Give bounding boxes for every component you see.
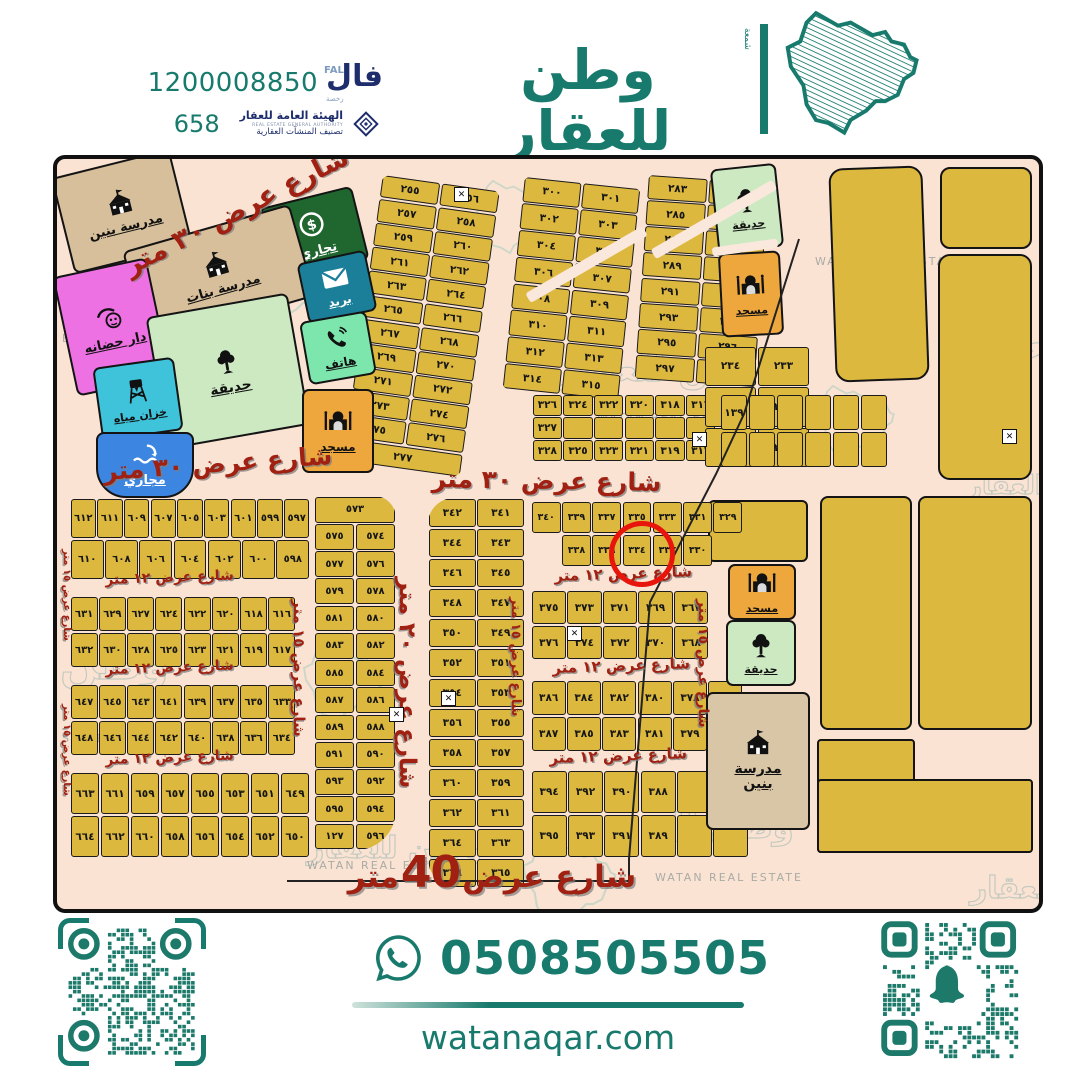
plot-٦٣١: ٦٣١: [71, 597, 98, 632]
plot-٦٣٥: ٦٣٥: [240, 685, 267, 720]
plot-unlabeled: [833, 395, 860, 431]
facility-label: بريد: [327, 292, 353, 309]
street-label: شارع عرض ١٢ متر: [105, 748, 234, 768]
plot-٦٤٥: ٦٤٥: [99, 685, 126, 720]
street-label: شارع عرض ١٢ متر: [549, 744, 687, 767]
plot-٥٧٣: ٥٧٣: [315, 497, 396, 523]
plot-block-b316: ٣٢٦٣٢٤٣٢٢٣٢٠٣١٨٣١٦٣٢٧٣٢٨٣٢٥٣٢٣٣٢١٣١٩٣١٧: [532, 394, 716, 462]
unified-phone-number[interactable]: 1200008850: [148, 68, 318, 98]
plot-٦٤٩: ٦٤٩: [281, 773, 310, 815]
facility-telephone: هاتف: [299, 311, 377, 386]
plot-slab: [938, 254, 1032, 480]
bottom-street-prefix: شارع عرض: [462, 859, 636, 895]
street-label: شارع عرض ١٥ متر: [61, 704, 72, 824]
plot-٣٤٢: ٣٤٢: [429, 499, 476, 528]
plot-٦٤٦: ٦٤٦: [99, 721, 126, 756]
plot-٣٥٩: ٣٥٩: [477, 769, 524, 798]
plot-٦٥٣: ٦٥٣: [221, 773, 250, 815]
plot-slab: [817, 779, 1033, 853]
plot-٦٠٣: ٦٠٣: [204, 499, 229, 539]
survey-marker-icon: ✕: [441, 691, 456, 706]
plot-٢٩٥: ٢٩٥: [636, 329, 697, 357]
plot-٦٦٣: ٦٦٣: [71, 773, 100, 815]
brand-divider-bar: [760, 24, 768, 134]
plot-٣٤١: ٣٤١: [477, 499, 524, 528]
plot-٥٩٧: ٥٩٧: [284, 499, 309, 539]
authority-name: الهيئة العامة للعقار: [240, 110, 343, 123]
street-label: شارع عرض ١٢ متر: [552, 654, 690, 677]
plot-٣١٤: ٣١٤: [502, 363, 562, 394]
plot-٣١٨: ٣١٨: [655, 395, 684, 416]
plot-٦٦٠: ٦٦٠: [131, 816, 160, 858]
plot-٣٢٥: ٣٢٥: [563, 440, 592, 461]
plot-٥٩١: ٥٩١: [315, 742, 355, 768]
plot-٥٨٩: ٥٨٩: [315, 715, 355, 741]
plot-٥٨١: ٥٨١: [315, 606, 355, 632]
mosque-icon: [734, 271, 768, 303]
plot-٦٠٩: ٦٠٩: [124, 499, 149, 539]
plot-٦٣٦: ٦٣٦: [240, 721, 267, 756]
plot-٣٧١: ٣٧١: [603, 591, 637, 625]
survey-marker-icon: ✕: [454, 187, 469, 202]
plot-٣٦٩: ٣٦٩: [638, 591, 672, 625]
plot-٣٤٥: ٣٤٥: [477, 559, 524, 588]
plot-٣٢٦: ٣٢٦: [533, 395, 562, 416]
plot-٣٤٤: ٣٤٤: [429, 529, 476, 558]
plot-٦٥٩: ٦٥٩: [131, 773, 160, 815]
plot-٣٤٣: ٣٤٣: [477, 529, 524, 558]
plot-block-b367: ٣٧٥٣٧٣٣٧١٣٦٩٣٦٧٣٧٦٣٧٤٣٧٢٣٧٠٣٦٨: [531, 590, 709, 660]
plot-٣٥٢: ٣٥٢: [429, 649, 476, 678]
plot-٦٥٧: ٦٥٧: [161, 773, 190, 815]
fal-license-logo: فال FAL رخصة: [326, 62, 383, 103]
plot-٢٨٩: ٢٨٩: [642, 252, 703, 280]
plot-٦٠٥: ٦٠٥: [177, 499, 202, 539]
plot-١٣٩: ١٣٩: [721, 395, 748, 431]
street-label: شارع عرض ١٥ متر: [290, 599, 308, 774]
fal-logo-sub: رخصة: [326, 96, 344, 103]
plot-٢٣٤: ٢٣٤: [705, 347, 757, 386]
whatsapp-icon: [370, 930, 426, 986]
plot-٦٥٦: ٦٥٦: [191, 816, 220, 858]
plot-٢٩٧: ٢٩٧: [634, 355, 695, 383]
saudi-map-icon: [780, 10, 940, 142]
facility-label: مدرسة بنين: [722, 762, 794, 791]
qr-corner-bracket: [175, 918, 206, 949]
plot-unlabeled: [594, 417, 623, 438]
survey-marker-icon: ✕: [389, 707, 404, 722]
plot-slab: [940, 167, 1032, 249]
survey-marker-icon: ✕: [567, 626, 582, 641]
street-label: شارع عرض ١٥ متر: [508, 597, 523, 742]
qr-corner-bracket: [175, 1035, 206, 1066]
plot-٣٢١: ٣٢١: [625, 440, 654, 461]
plot-٣٨٤: ٣٨٤: [567, 681, 601, 716]
facility-label: حديقة: [745, 664, 778, 676]
plot-٣٦١: ٣٦١: [477, 799, 524, 828]
plot-٦٠٧: ٦٠٧: [151, 499, 176, 539]
bottom-street-suffix: متر: [348, 859, 399, 895]
plot-٦٢٠: ٦٢٠: [212, 597, 239, 632]
plot-٣٧٣: ٣٧٣: [567, 591, 601, 625]
watermark-arabic: لعقار: [970, 871, 1043, 906]
plot-٢٣٣: ٢٣٣: [758, 347, 810, 386]
street-label-bottom-40m: شارع عرض 40 متر: [272, 847, 712, 898]
plot-٣٢٧: ٣٢٧: [533, 417, 562, 438]
plot-٦٣٩: ٦٣٩: [184, 685, 211, 720]
plot-٣٧٢: ٣٧٢: [603, 626, 637, 660]
plot-unlabeled: [861, 395, 888, 431]
facility-mosque: مسجد: [718, 250, 784, 337]
phone-icon: [321, 324, 352, 357]
plot-٥٩٣: ٥٩٣: [315, 769, 355, 795]
plot-٥٧٨: ٥٧٨: [356, 578, 396, 604]
plot-٥٨٠: ٥٨٠: [356, 606, 396, 632]
street-label: شارع عرض ١٥ متر: [61, 549, 72, 669]
plot-٦٤٨: ٦٤٨: [71, 721, 98, 756]
plot-unlabeled: [833, 432, 860, 468]
plot-٥٧٤: ٥٧٤: [356, 524, 396, 550]
whatsapp-number[interactable]: 0508505505: [440, 931, 770, 985]
plot-٦٠٠: ٦٠٠: [242, 540, 275, 580]
plot-slab: [918, 496, 1032, 730]
plot-٣٣٨: ٣٣٨: [562, 535, 591, 567]
plot-٥٨٢: ٥٨٢: [356, 633, 396, 659]
plot-٣٢٩: ٣٢٩: [713, 502, 742, 534]
qr-code-snapchat[interactable]: [876, 916, 1026, 1066]
plot-unlabeled: [749, 432, 776, 468]
plot-٥٧٧: ٥٧٧: [315, 551, 355, 577]
plot-٥٨٥: ٥٨٥: [315, 660, 355, 686]
plot-٣٨٨: ٣٨٨: [641, 771, 676, 814]
plot-٣٨٧: ٣٨٧: [532, 717, 566, 752]
facility-mosque: مسجد: [728, 564, 796, 620]
plot-block-b139: ١٣٩: [720, 394, 888, 468]
plot-٣٨٠: ٣٨٠: [638, 681, 672, 716]
plot-٣٧٥: ٣٧٥: [532, 591, 566, 625]
plot-٣٩٤: ٣٩٤: [532, 771, 567, 814]
plot-٣٤٠: ٣٤٠: [532, 502, 561, 534]
plot-٥٩٠: ٥٩٠: [356, 742, 396, 768]
authority-logo-icon: [349, 107, 383, 141]
plot-٦٦٢: ٦٦٢: [101, 816, 130, 858]
plot-unlabeled: [721, 432, 748, 468]
plot-block-b649: ٦٦٣٦٦١٦٥٩٦٥٧٦٥٥٦٥٣٦٥١٦٤٩٦٦٤٦٦٢٦٦٠٦٥٨٦٥٦٦…: [70, 772, 310, 858]
plot-٣٨٥: ٣٨٥: [567, 717, 601, 752]
qr-corner-bracket: [58, 918, 89, 949]
plot-unlabeled: [563, 417, 592, 438]
facility-label: حديقة: [732, 217, 766, 232]
mosque-icon: [746, 570, 778, 601]
plot-٦١٠: ٦١٠: [71, 540, 104, 580]
plot-٣٣٩: ٣٣٩: [562, 502, 591, 534]
plot-٣٤٦: ٣٤٦: [429, 559, 476, 588]
survey-marker-icon: ✕: [1002, 429, 1017, 444]
tree-icon: [211, 345, 242, 381]
plot-٣٢٤: ٣٢٤: [563, 395, 592, 416]
plot-unlabeled: [805, 432, 832, 468]
tank-icon: [121, 375, 153, 409]
plot-١٢٧: ١٢٧: [315, 824, 355, 850]
plot-٦٢٢: ٦٢٢: [184, 597, 211, 632]
license-number: 658: [174, 110, 220, 138]
street-label: شارع عرض ١٥ متر: [695, 599, 711, 799]
facility-school_boys: مدرسة بنين: [706, 692, 810, 830]
flyer: 1200008850 فال FAL رخصة 658 الهيئة العام…: [0, 0, 1080, 1080]
plot-unlabeled: [777, 432, 804, 468]
plot-slab: [820, 496, 912, 730]
plot-٣٩٠: ٣٩٠: [604, 771, 639, 814]
plot-٦١٨: ٦١٨: [240, 597, 267, 632]
facility-label: هاتف: [324, 354, 357, 372]
plot-٥٧٩: ٥٧٩: [315, 578, 355, 604]
plot-٢٩٣: ٢٩٣: [638, 303, 699, 331]
plot-٣٨٦: ٣٨٦: [532, 681, 566, 716]
qr-corner-bracket: [58, 1035, 89, 1066]
plot-block-b597: ٦١٢٦١١٦٠٩٦٠٧٦٠٥٦٠٣٦٠١٥٩٩٥٩٧٦١٠٦٠٨٦٠٦٦٠٤٦…: [70, 498, 310, 580]
plot-٣٢٠: ٣٢٠: [625, 395, 654, 416]
plot-٥٧٦: ٥٧٦: [356, 551, 396, 577]
school-icon: [743, 730, 773, 760]
whatsapp-contact[interactable]: 0508505505: [370, 930, 770, 986]
plot-٣٦٠: ٣٦٠: [429, 769, 476, 798]
plot-٣٢٨: ٣٢٨: [533, 440, 562, 461]
plot-unlabeled: [805, 395, 832, 431]
plot-٦٤٣: ٦٤٣: [127, 685, 154, 720]
plot-٥٨٤: ٥٨٤: [356, 660, 396, 686]
brand-side-text: شمعة: [742, 28, 752, 133]
plot-٦١١: ٦١١: [97, 499, 122, 539]
plot-٥٨٧: ٥٨٧: [315, 687, 355, 713]
street-label: شارع عرض ١٢ متر: [105, 658, 234, 678]
plot-unlabeled: [749, 395, 776, 431]
street-label: شارع عرض ٣٠ متر: [431, 464, 661, 497]
plot-block-b616: ٦٣١٦٢٩٦٢٧٦٢٤٦٢٢٦٢٠٦١٨٦١٦٦٣٢٦٣٠٦٢٨٦٢٥٦٢٣٦…: [70, 596, 296, 668]
bottom-street-number: 40: [401, 847, 460, 898]
plot-unlabeled: [861, 432, 888, 468]
plot-٦٣٧: ٦٣٧: [212, 685, 239, 720]
fal-logo-en: FAL: [324, 66, 344, 76]
plot-٦٥٤: ٦٥٤: [221, 816, 250, 858]
plot-٦٣٢: ٦٣٢: [71, 633, 98, 668]
facility-label: خزان مياه: [113, 406, 168, 425]
plot-٦٦٤: ٦٦٤: [71, 816, 100, 858]
plot-٣٤٨: ٣٤٨: [429, 589, 476, 618]
authority-classification: تصنيف المنشآت العقارية: [256, 128, 343, 138]
plot-block-b633: ٦٤٧٦٤٥٦٤٣٦٤١٦٣٩٦٣٧٦٣٥٦٣٣٦٤٨٦٤٦٦٤٤٦٤٢٦٤٠٦…: [70, 684, 296, 756]
facility-label: مسجد: [735, 304, 768, 317]
plot-٢٨٣: ٢٨٣: [647, 175, 708, 203]
mosque-icon: [322, 408, 354, 439]
authority-text: الهيئة العامة للعقار REAL ESTATE GENERAL…: [240, 110, 343, 138]
qr-code-left[interactable]: [62, 922, 202, 1062]
plot-٣٥٨: ٣٥٨: [429, 739, 476, 768]
plot-٥٩٩: ٥٩٩: [257, 499, 282, 539]
plot-٣٥٠: ٣٥٠: [429, 619, 476, 648]
plot-٦٦١: ٦٦١: [101, 773, 130, 815]
facility-label: مسجد: [746, 603, 778, 615]
plot-٣٦٢: ٣٦٢: [429, 799, 476, 828]
facility-water_tank: خزان مياه: [92, 357, 184, 442]
plot-٥٩٢: ٥٩٢: [356, 769, 396, 795]
plot-٣٢٢: ٣٢٢: [594, 395, 623, 416]
plot-٣٣١: ٣٣١: [683, 502, 712, 534]
plot-٣٣٧: ٣٣٧: [592, 502, 621, 534]
plot-٦٢٩: ٦٢٩: [99, 597, 126, 632]
highlight-circle: [609, 521, 675, 587]
plot-block-b573: ٥٧٣٥٧٥٥٧٤٥٧٧٥٧٦٥٧٩٥٧٨٥٨١٥٨٠٥٨٣٥٨٢٥٨٥٥٨٤٥…: [314, 496, 396, 850]
plot-٦٥٨: ٦٥٨: [161, 816, 190, 858]
plot-٥٩٨: ٥٩٨: [276, 540, 309, 580]
facility-garden: حديقة: [726, 620, 796, 686]
plot-٦٥٥: ٦٥٥: [191, 773, 220, 815]
plot-٦٢٤: ٦٢٤: [155, 597, 182, 632]
plot-unlabeled: [655, 417, 684, 438]
plot-٣٥٧: ٣٥٧: [477, 739, 524, 768]
plot-٥٧٥: ٥٧٥: [315, 524, 355, 550]
plot-٥٩٤: ٥٩٤: [356, 796, 396, 822]
plot-٥٩٥: ٥٩٥: [315, 796, 355, 822]
plot-٦٢٧: ٦٢٧: [127, 597, 154, 632]
brand-name-arabic: وطن للعقار: [448, 40, 728, 161]
header-left: 1200008850 فال FAL رخصة 658 الهيئة العام…: [168, 62, 383, 141]
website-url[interactable]: watanaqar.com: [352, 1018, 744, 1057]
plot-٣١٩: ٣١٩: [655, 440, 684, 461]
plot-٦٤٧: ٦٤٧: [71, 685, 98, 720]
plot-٦٤١: ٦٤١: [155, 685, 182, 720]
street-label: شارع عرض ١٢ متر: [105, 568, 234, 588]
plot-slab: [828, 165, 929, 382]
plot-٦١٢: ٦١٢: [71, 499, 96, 539]
svg-text:$: $: [305, 217, 318, 235]
plot-٦١٩: ٦١٩: [240, 633, 267, 668]
tree-icon: [748, 631, 774, 662]
plot-block-b300: ٣٠٠٣٠١٣٠٢٣٠٣٣٠٤٣٠٥٣٠٦٣٠٧٣٠٨٣٠٩٣١٠٣١١٣١٢٣…: [502, 176, 642, 401]
survey-marker-icon: ✕: [692, 432, 707, 447]
plot-٦٠١: ٦٠١: [231, 499, 256, 539]
plot-٣٩٢: ٣٩٢: [568, 771, 603, 814]
footer-divider: [352, 1002, 744, 1008]
plot-٣٨٢: ٣٨٢: [602, 681, 636, 716]
baby-icon: [92, 301, 128, 338]
plot-٣٢٣: ٣٢٣: [594, 440, 623, 461]
plot-٦٥١: ٦٥١: [251, 773, 280, 815]
plot-٣٥٦: ٣٥٦: [429, 709, 476, 738]
plot-map: شارع عرض 40 متر ٢٥٥٢٥٦٢٥٧٢٥٨٢٥٩٢٦٠٢٦١٢٦٢…: [53, 155, 1043, 913]
plot-٢٩١: ٢٩١: [640, 277, 701, 305]
plot-٥٨٣: ٥٨٣: [315, 633, 355, 659]
street-label: شارع عرض ٢٠ متر: [394, 577, 420, 812]
plot-٣٧٦: ٣٧٦: [532, 626, 566, 660]
plot-unlabeled: [777, 395, 804, 431]
plot-unlabeled: [625, 417, 654, 438]
